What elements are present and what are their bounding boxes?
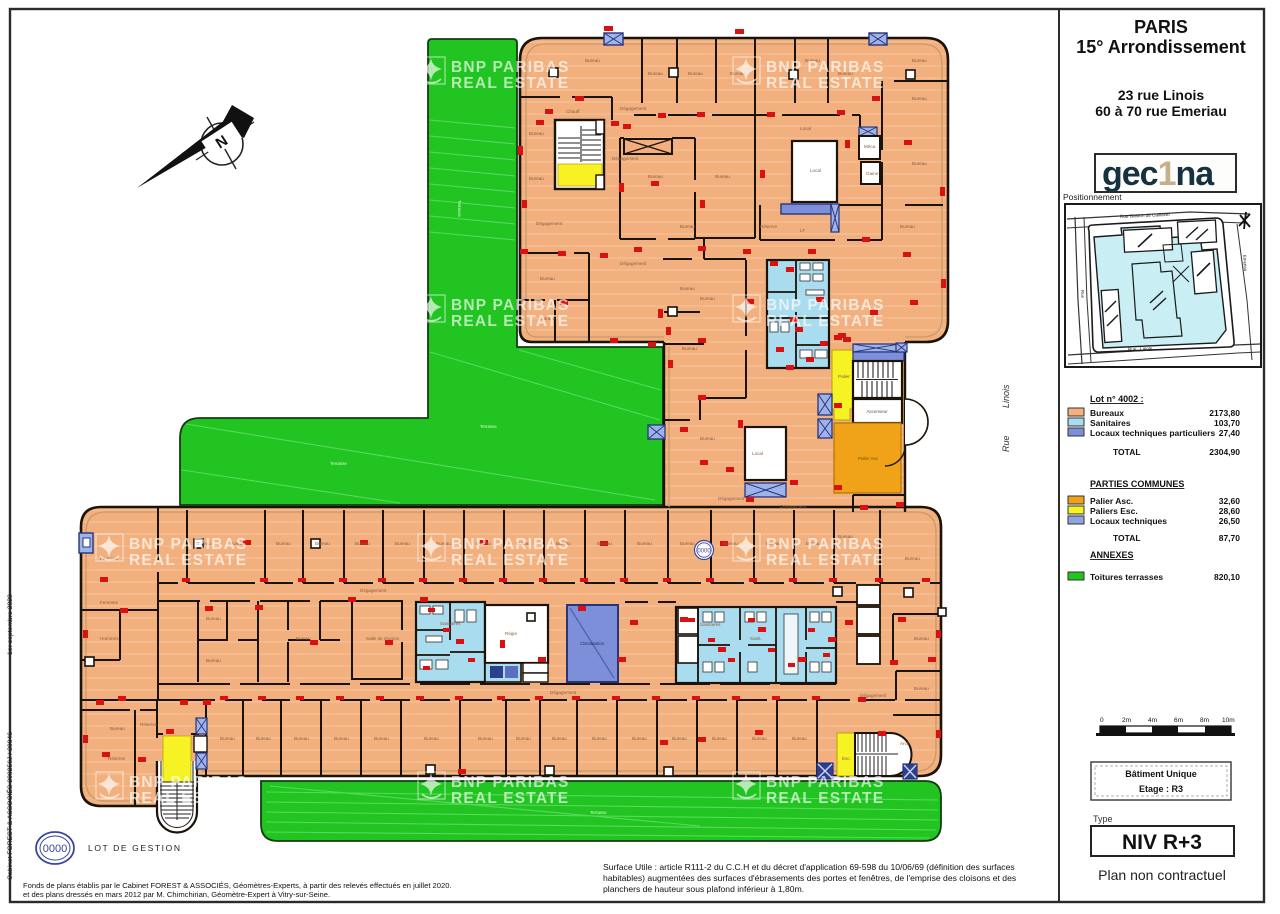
svg-text:Etage : R3: Etage : R3 xyxy=(1139,784,1183,794)
svg-text:Bureau: Bureau xyxy=(700,296,715,301)
svg-text:REAL ESTATE: REAL ESTATE xyxy=(451,75,569,92)
svg-text:Bureau: Bureau xyxy=(700,436,715,441)
svg-text:Bureau: Bureau xyxy=(206,616,221,621)
svg-text:TOTAL: TOTAL xyxy=(1113,533,1141,543)
svg-text:PARTIES COMMUNES: PARTIES COMMUNES xyxy=(1090,479,1184,489)
svg-text:Paliers Esc.: Paliers Esc. xyxy=(1090,506,1138,516)
svg-text:Gaine: Gaine xyxy=(866,171,879,176)
svg-text:Linois: Linois xyxy=(1001,384,1011,408)
svg-text:28,60: 28,60 xyxy=(1219,506,1241,516)
svg-text:Bureau: Bureau xyxy=(632,736,647,741)
svg-text:Bureau: Bureau xyxy=(682,346,697,351)
svg-text:Bureau: Bureau xyxy=(715,174,730,179)
svg-text:Palier Asc.: Palier Asc. xyxy=(1090,496,1133,506)
svg-text:Palier: Palier xyxy=(838,374,850,379)
svg-text:87,70: 87,70 xyxy=(1219,533,1241,543)
svg-text:Bureau: Bureau xyxy=(912,161,927,166)
svg-text:Locaux techniques: Locaux techniques xyxy=(1090,516,1167,526)
svg-text:Bâtiment Unique: Bâtiment Unique xyxy=(1125,769,1197,779)
svg-text:BNP PARIBAS: BNP PARIBAS xyxy=(129,536,248,553)
svg-text:Bureau: Bureau xyxy=(315,541,330,546)
svg-text:Local: Local xyxy=(810,168,821,173)
svg-text:Dégagement: Dégagement xyxy=(612,156,639,161)
svg-text:Dégagement: Dégagement xyxy=(860,693,887,698)
svg-text:Bureau: Bureau xyxy=(110,726,125,731)
svg-text:BNP PARIBAS: BNP PARIBAS xyxy=(451,536,570,553)
svg-text:Bureau: Bureau xyxy=(637,541,652,546)
svg-text:BNP PARIBAS: BNP PARIBAS xyxy=(766,297,885,314)
svg-text:8m: 8m xyxy=(1200,717,1209,724)
svg-text:TOTAL: TOTAL xyxy=(1113,447,1141,457)
svg-text:Sanit.: Sanit. xyxy=(750,636,762,641)
svg-text:Chauff.: Chauff. xyxy=(566,109,581,114)
svg-text:Bureau: Bureau xyxy=(478,736,493,741)
svg-text:Bureau: Bureau xyxy=(648,71,663,76)
svg-text:Surface Utile : article R111-2: Surface Utile : article R111-2 du C.C.H … xyxy=(603,862,1015,872)
svg-text:Hommes: Hommes xyxy=(100,636,119,641)
svg-text:Bureau: Bureau xyxy=(206,658,221,663)
svg-text:26,50: 26,50 xyxy=(1219,516,1241,526)
svg-text:REAL ESTATE: REAL ESTATE xyxy=(766,552,884,569)
svg-text:Esc.: Esc. xyxy=(842,756,851,761)
svg-text:32,60: 32,60 xyxy=(1219,496,1241,506)
svg-text:Bureau: Bureau xyxy=(529,131,544,136)
svg-text:NIV R+3: NIV R+3 xyxy=(1122,831,1202,854)
svg-text:2304,90: 2304,90 xyxy=(1209,447,1240,457)
svg-text:Plan non contractuel: Plan non contractuel xyxy=(1098,867,1226,883)
svg-text:Réserve: Réserve xyxy=(140,722,158,727)
svg-text:Bureau: Bureau xyxy=(792,736,807,741)
svg-text:planchers de hauteur sous plaf: planchers de hauteur sous plafond inféri… xyxy=(603,884,804,894)
svg-text:REAL ESTATE: REAL ESTATE xyxy=(129,75,247,92)
svg-text:Local: Local xyxy=(752,451,763,456)
svg-text:Bureau: Bureau xyxy=(516,736,531,741)
svg-text:BNP PARIBAS: BNP PARIBAS xyxy=(766,774,885,791)
svg-text:Bureau: Bureau xyxy=(220,736,235,741)
svg-text:Terrasse: Terrasse xyxy=(480,424,497,429)
svg-text:Régie: Régie xyxy=(505,631,517,636)
svg-text:Bureau: Bureau xyxy=(672,736,687,741)
svg-text:103,70: 103,70 xyxy=(1214,418,1240,428)
svg-text:Bureau: Bureau xyxy=(552,736,567,741)
svg-text:10m: 10m xyxy=(1222,717,1235,724)
svg-text:Bureau: Bureau xyxy=(712,736,727,741)
svg-text:15° Arrondissement: 15° Arrondissement xyxy=(1076,37,1246,57)
svg-text:Bureau: Bureau xyxy=(914,686,929,691)
svg-text:BNP PARIBAS: BNP PARIBAS xyxy=(451,297,570,314)
svg-text:Dégagement: Dégagement xyxy=(360,588,387,593)
svg-text:Cabinet FOREST & ASSOCIÉS 2002: Cabinet FOREST & ASSOCIÉS 200256J / 2004… xyxy=(5,732,14,880)
svg-text:Réserve: Réserve xyxy=(108,756,126,761)
svg-text:Bureau: Bureau xyxy=(424,736,439,741)
svg-text:2173,80: 2173,80 xyxy=(1209,408,1240,418)
svg-text:Rue: Rue xyxy=(1080,290,1085,299)
svg-text:BNP PARIBAS: BNP PARIBAS xyxy=(129,59,248,76)
svg-text:ANNEXES: ANNEXES xyxy=(1090,550,1134,560)
svg-text:Palier Asc: Palier Asc xyxy=(858,456,879,461)
svg-text:2m: 2m xyxy=(1122,717,1131,724)
svg-text:PARIS: PARIS xyxy=(1134,17,1188,37)
svg-text:60 à 70 rue Emeriau: 60 à 70 rue Emeriau xyxy=(1095,103,1227,119)
svg-text:Salle de réunion: Salle de réunion xyxy=(366,636,400,641)
svg-text:4m: 4m xyxy=(1148,717,1157,724)
svg-text:LOT DE GESTION: LOT DE GESTION xyxy=(88,843,182,853)
svg-text:Climatisation: Climatisation xyxy=(580,641,605,646)
svg-text:820,10: 820,10 xyxy=(1214,572,1240,582)
svg-text:Réserve: Réserve xyxy=(760,224,778,229)
svg-text:Dégagement: Dégagement xyxy=(620,106,647,111)
svg-text:Méca: Méca xyxy=(864,144,876,149)
svg-text:23 rue Linois: 23 rue Linois xyxy=(1118,87,1205,103)
svg-text:REAL ESTATE: REAL ESTATE xyxy=(766,75,884,92)
svg-text:BNP PARIBAS: BNP PARIBAS xyxy=(766,59,885,76)
svg-text:Dégagement: Dégagement xyxy=(620,261,647,266)
svg-text:Locaux techniques particuliers: Locaux techniques particuliers xyxy=(1090,428,1215,438)
svg-text:Bureau: Bureau xyxy=(752,736,767,741)
svg-text:Terrasse: Terrasse xyxy=(590,810,607,815)
svg-text:Lot n° 4002 :: Lot n° 4002 : xyxy=(1090,394,1144,404)
svg-text:et des plans dressés en mars 2: et des plans dressés en mars 2012 par M.… xyxy=(23,890,330,899)
svg-text:BNP PARIBAS: BNP PARIBAS xyxy=(129,297,248,314)
svg-text:BNP PARIBAS: BNP PARIBAS xyxy=(129,774,248,791)
svg-text:REAL ESTATE: REAL ESTATE xyxy=(129,313,247,330)
svg-text:Sanitaires: Sanitaires xyxy=(440,621,461,626)
svg-text:Bureau: Bureau xyxy=(296,636,311,641)
svg-text:Dégagement: Dégagement xyxy=(780,504,807,509)
svg-text:0000: 0000 xyxy=(43,843,67,855)
svg-text:Bureau: Bureau xyxy=(334,736,349,741)
svg-text:Bureau: Bureau xyxy=(294,736,309,741)
svg-text:Positionnement: Positionnement xyxy=(1063,192,1122,202)
svg-text:REAL ESTATE: REAL ESTATE xyxy=(766,313,884,330)
svg-text:Bureau: Bureau xyxy=(374,736,389,741)
svg-text:Terrasse: Terrasse xyxy=(330,461,347,466)
svg-text:Sanitaires: Sanitaires xyxy=(1090,418,1131,428)
svg-text:Bureau: Bureau xyxy=(905,556,920,561)
svg-text:Bureaux: Bureaux xyxy=(1090,408,1124,418)
svg-text:Ascenseur: Ascenseur xyxy=(866,409,888,414)
svg-text:Bureau: Bureau xyxy=(276,541,291,546)
svg-text:Dégagement: Dégagement xyxy=(718,496,745,501)
svg-text:27,40: 27,40 xyxy=(1219,428,1241,438)
svg-text:Bureau: Bureau xyxy=(680,286,695,291)
svg-text:Dégagement: Dégagement xyxy=(550,690,577,695)
svg-text:Terrasse: Terrasse xyxy=(457,200,462,217)
svg-text:Bureau: Bureau xyxy=(355,541,370,546)
svg-text:habitables) augmentées des sur: habitables) augmentées des surfaces d'éb… xyxy=(603,873,1016,883)
svg-text:REAL ESTATE: REAL ESTATE xyxy=(451,552,569,569)
svg-text:Bureau: Bureau xyxy=(395,541,410,546)
svg-text:Bureau: Bureau xyxy=(256,736,271,741)
svg-text:Bureau: Bureau xyxy=(680,541,695,546)
svg-text:REAL ESTATE: REAL ESTATE xyxy=(129,790,247,807)
svg-text:Bureau: Bureau xyxy=(597,541,612,546)
svg-text:Sanitaires: Sanitaires xyxy=(700,622,721,627)
svg-text:BNP PARIBAS: BNP PARIBAS xyxy=(766,536,885,553)
svg-text:Toitures terrasses: Toitures terrasses xyxy=(1090,572,1163,582)
svg-text:Bureau: Bureau xyxy=(912,96,927,101)
svg-text:Fonds de plans établis par le: Fonds de plans établis par le Cabinet FO… xyxy=(23,881,452,890)
svg-text:0000: 0000 xyxy=(697,549,711,555)
svg-text:0: 0 xyxy=(1100,717,1104,724)
svg-text:Bureau: Bureau xyxy=(540,276,555,281)
svg-text:Local: Local xyxy=(800,126,811,131)
svg-text:Bureau: Bureau xyxy=(688,71,703,76)
svg-text:gec1na: gec1na xyxy=(1102,155,1215,193)
svg-text:Arch.: Arch. xyxy=(900,741,911,746)
svg-text:REAL ESTATE: REAL ESTATE xyxy=(129,552,247,569)
svg-text:LT: LT xyxy=(800,228,805,233)
svg-text:BNP PARIBAS: BNP PARIBAS xyxy=(451,774,570,791)
svg-text:Rue: Rue xyxy=(1001,435,1011,452)
svg-text:REAL ESTATE: REAL ESTATE xyxy=(451,313,569,330)
svg-text:Bureau: Bureau xyxy=(680,224,695,229)
svg-text:Bureau: Bureau xyxy=(723,541,738,546)
svg-text:Bureau: Bureau xyxy=(900,224,915,229)
svg-text:Bureau: Bureau xyxy=(912,58,927,63)
svg-text:Femmes: Femmes xyxy=(100,600,119,605)
svg-text:Bureau: Bureau xyxy=(914,636,929,641)
svg-text:6m: 6m xyxy=(1174,717,1183,724)
svg-text:Bureau: Bureau xyxy=(529,176,544,181)
svg-text:Dégagement: Dégagement xyxy=(536,221,563,226)
svg-text:Type: Type xyxy=(1093,814,1113,824)
svg-text:BNP PARIBAS: BNP PARIBAS xyxy=(451,59,570,76)
svg-text:Bureau: Bureau xyxy=(648,174,663,179)
svg-text:1er septembre 2020: 1er septembre 2020 xyxy=(7,594,14,655)
svg-text:Bureau: Bureau xyxy=(585,58,600,63)
svg-text:REAL ESTATE: REAL ESTATE xyxy=(451,790,569,807)
svg-text:Bureau: Bureau xyxy=(592,736,607,741)
svg-text:REAL ESTATE: REAL ESTATE xyxy=(766,790,884,807)
